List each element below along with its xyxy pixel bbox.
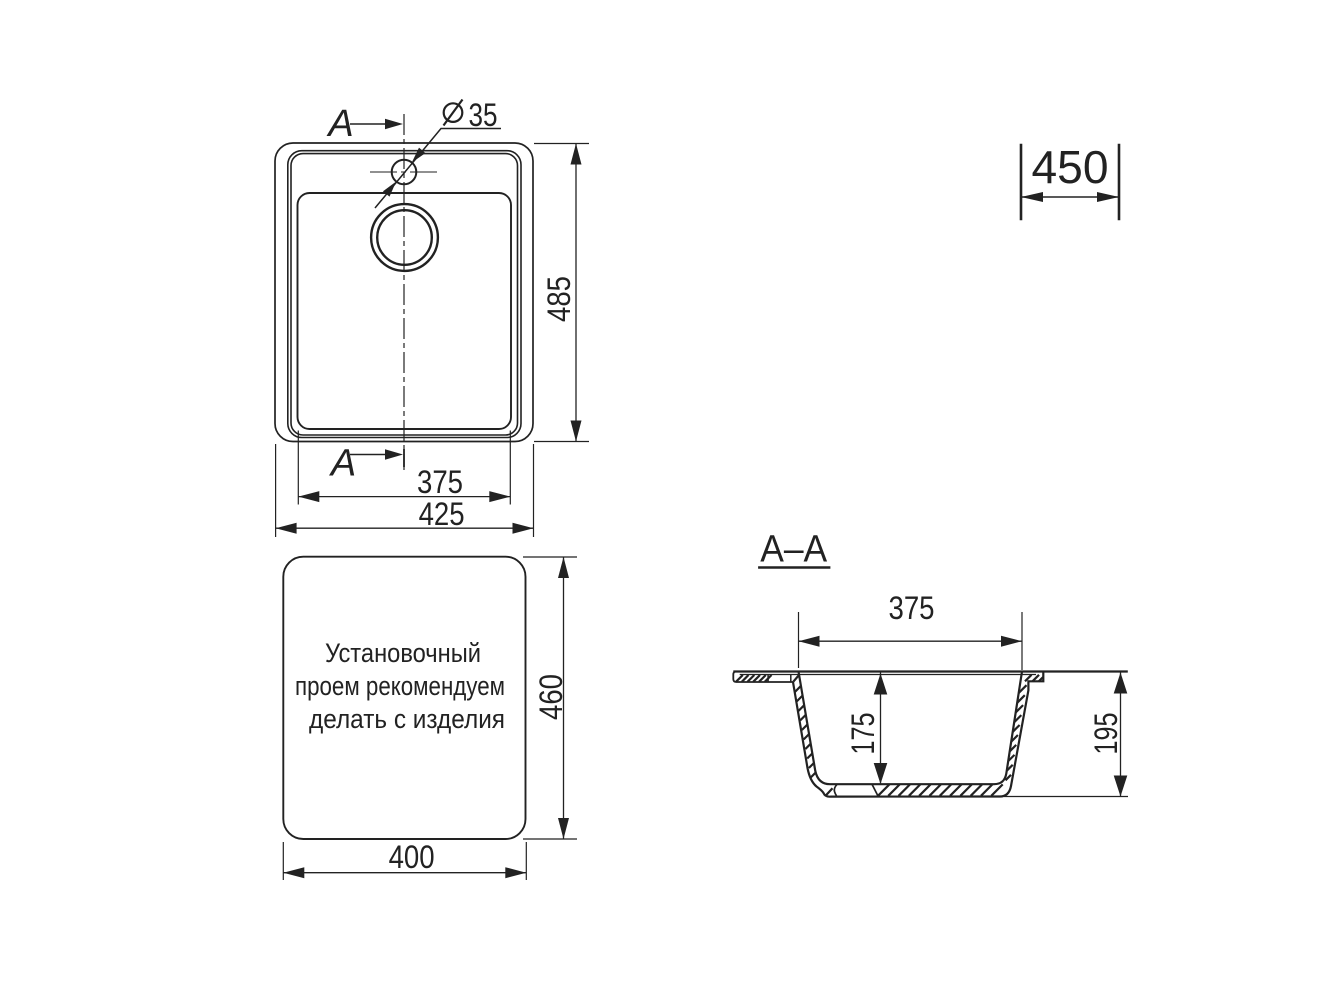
svg-text:400: 400 (389, 839, 435, 875)
svg-text:A: A (329, 443, 356, 485)
svg-text:A: A (326, 103, 353, 145)
svg-text:485: 485 (541, 276, 577, 322)
svg-text:делать с изделия: делать с изделия (309, 704, 505, 734)
svg-text:375: 375 (417, 464, 463, 500)
svg-text:Установочный: Установочный (325, 638, 481, 668)
svg-text:175: 175 (845, 713, 881, 755)
svg-text:проем рекомендуем: проем рекомендуем (295, 671, 505, 701)
svg-text:A–A: A–A (760, 528, 828, 570)
svg-text:35: 35 (469, 97, 498, 133)
svg-text:450: 450 (1032, 141, 1109, 193)
svg-text:460: 460 (533, 674, 569, 720)
svg-text:425: 425 (419, 496, 465, 532)
svg-text:375: 375 (889, 590, 935, 626)
svg-text:195: 195 (1088, 713, 1124, 755)
